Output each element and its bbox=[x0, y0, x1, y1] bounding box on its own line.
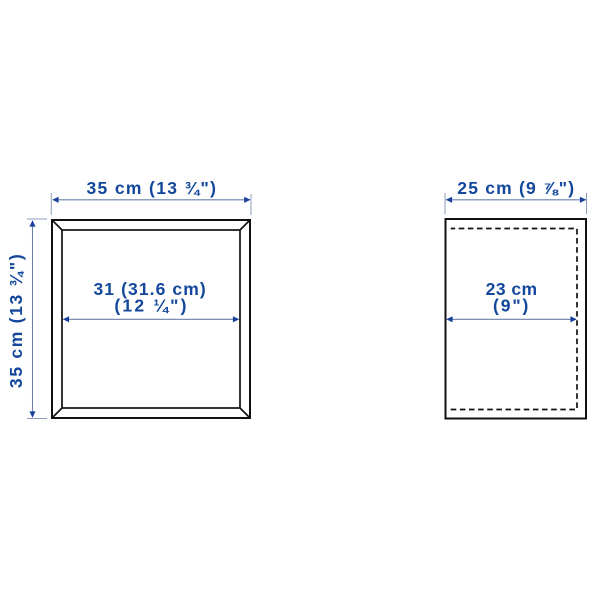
svg-text:25 cm (9 ⅞"): 25 cm (9 ⅞") bbox=[457, 178, 575, 198]
svg-text:(12 ¼"): (12 ¼") bbox=[114, 296, 188, 316]
svg-text:35 cm (13 ¾"): 35 cm (13 ¾") bbox=[6, 253, 26, 388]
svg-text:(9"): (9") bbox=[493, 296, 530, 316]
svg-text:35 cm (13 ¾"): 35 cm (13 ¾") bbox=[86, 178, 217, 198]
